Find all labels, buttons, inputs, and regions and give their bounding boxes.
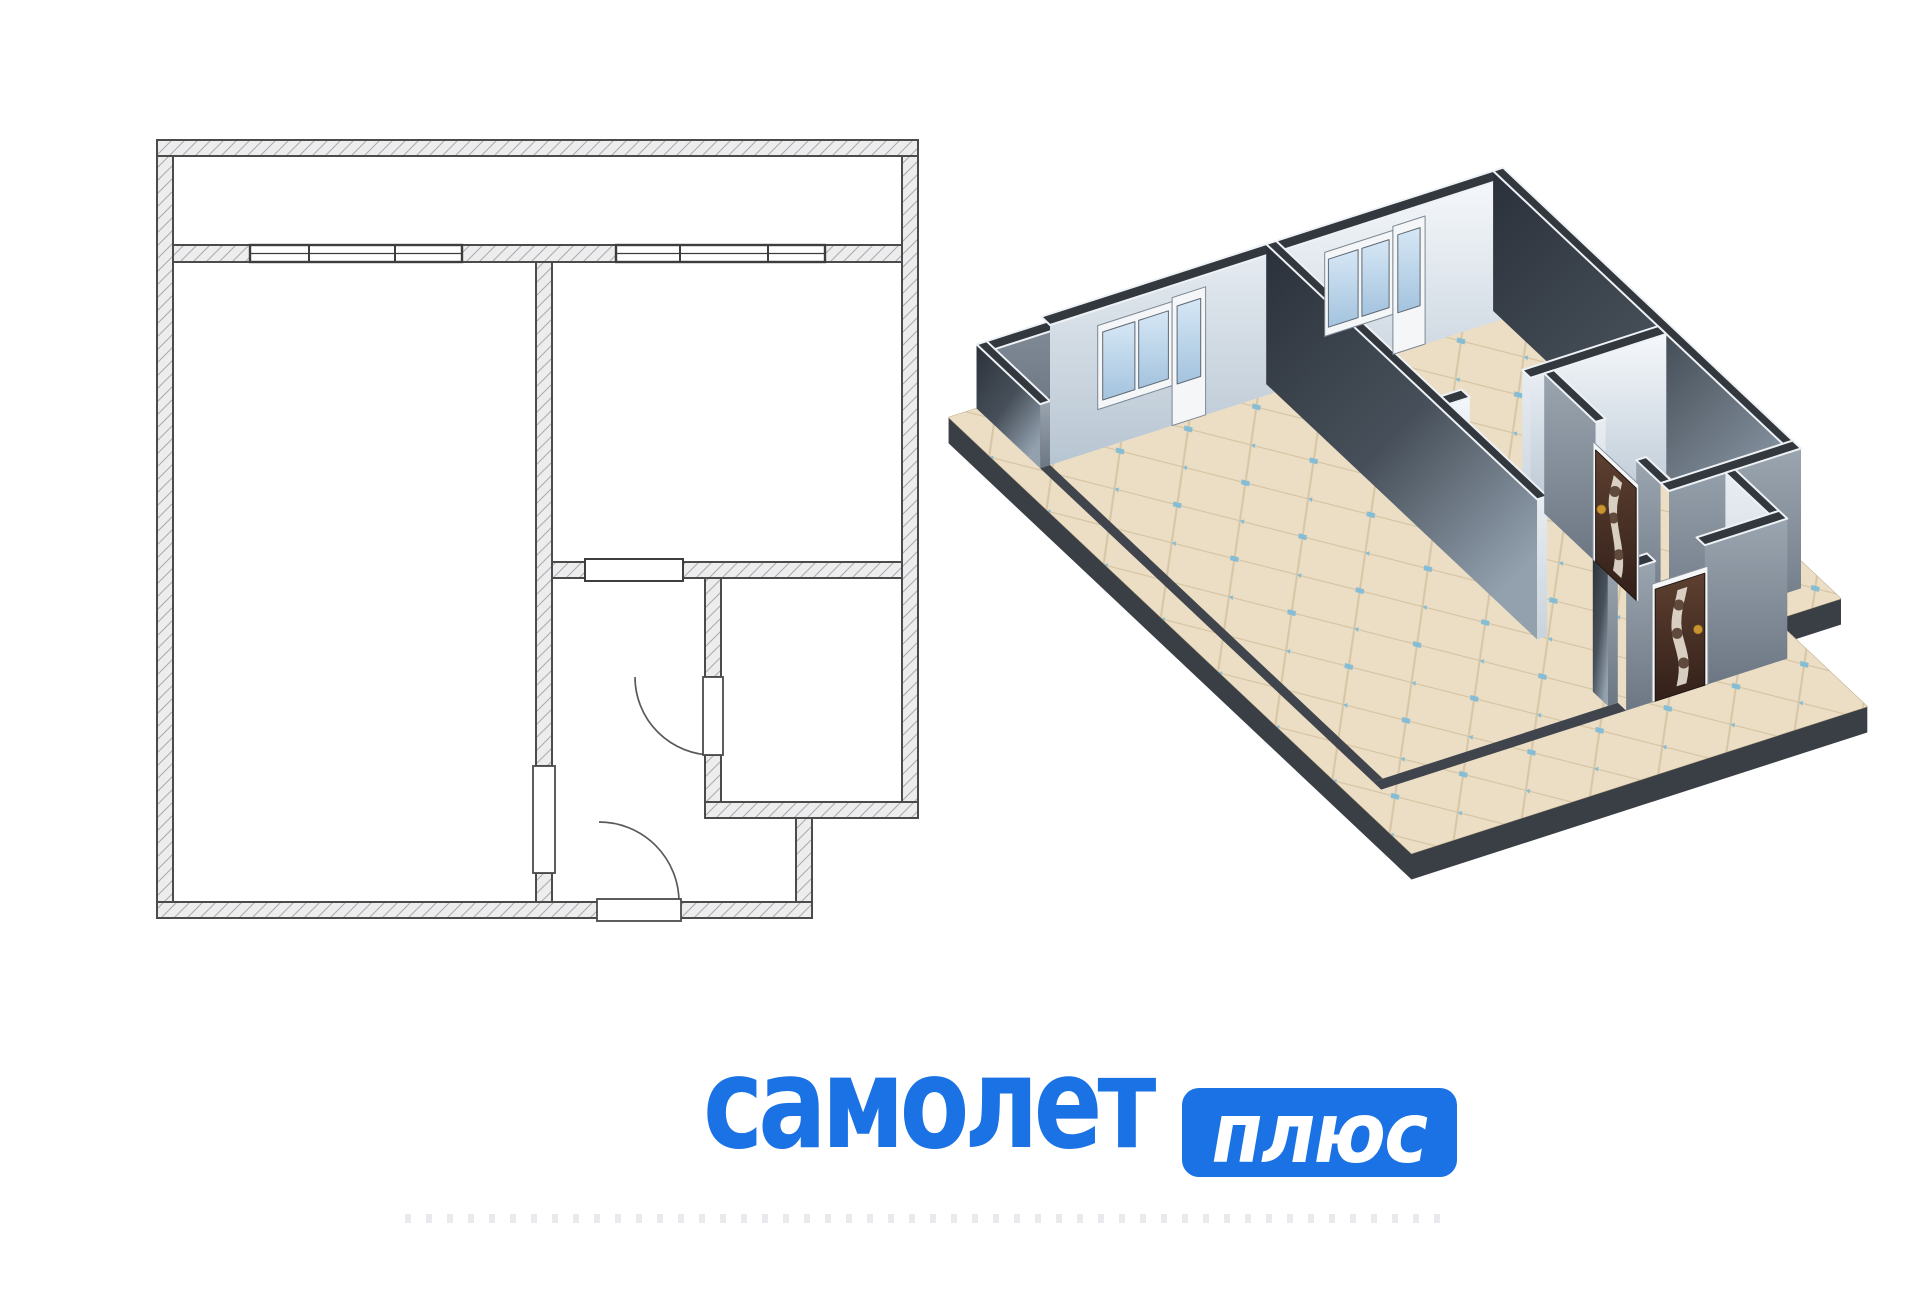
floorplan-3d-render [949,168,1867,880]
watermark-dashes [405,1214,1445,1223]
real-estate-listing-image: самолет плюс [0,0,1920,1294]
brand-name-text: самолет [703,1040,1151,1167]
brand-badge-text: плюс [1212,1091,1427,1175]
brand-badge: плюс [1182,1088,1457,1177]
floorplan-2d [157,140,918,921]
